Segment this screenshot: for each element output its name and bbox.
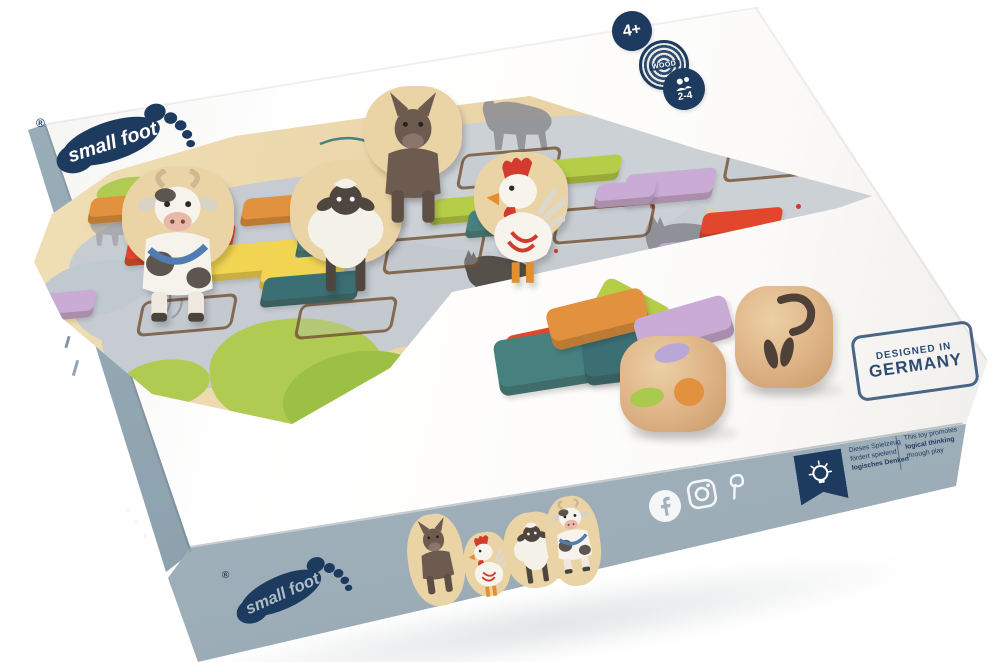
donkey-icon (404, 514, 467, 600)
instagram-icon (685, 477, 720, 512)
die-purple-dot (652, 340, 691, 366)
flower-print (796, 204, 801, 209)
side-text-mark (64, 336, 70, 348)
pinterest-icon (721, 469, 751, 501)
brand-logo-top: small foot (31, 88, 208, 180)
hoofprint-die (735, 286, 833, 388)
registered-mark: ® (36, 116, 45, 130)
hoofprint-icon (757, 334, 801, 374)
side-speck (143, 534, 147, 538)
horseshoe-icon (771, 292, 819, 336)
chicken-icon (477, 155, 565, 288)
age-badge-label: 4+ (622, 21, 643, 42)
side-text-mark (72, 360, 79, 376)
product-photo: small foot ® 4+ WOOD 2-4 DESIGNED IN GER… (0, 0, 1000, 662)
donkey-figure (364, 86, 462, 178)
chicken-figure (474, 152, 568, 242)
side-speck (126, 508, 130, 512)
lightbulb-icon (802, 457, 839, 494)
cow-icon (542, 496, 603, 578)
cow-figure (122, 166, 234, 270)
die-orange-dot (674, 378, 704, 406)
die-green-dot (629, 385, 666, 410)
side-speck (134, 520, 138, 524)
color-die (620, 336, 726, 432)
cow-icon (125, 169, 230, 327)
players-badge-label: 2-4 (677, 89, 693, 102)
footprint-logo: small foot (31, 88, 208, 180)
donkey-icon (367, 89, 459, 227)
facebook-icon (645, 486, 684, 525)
